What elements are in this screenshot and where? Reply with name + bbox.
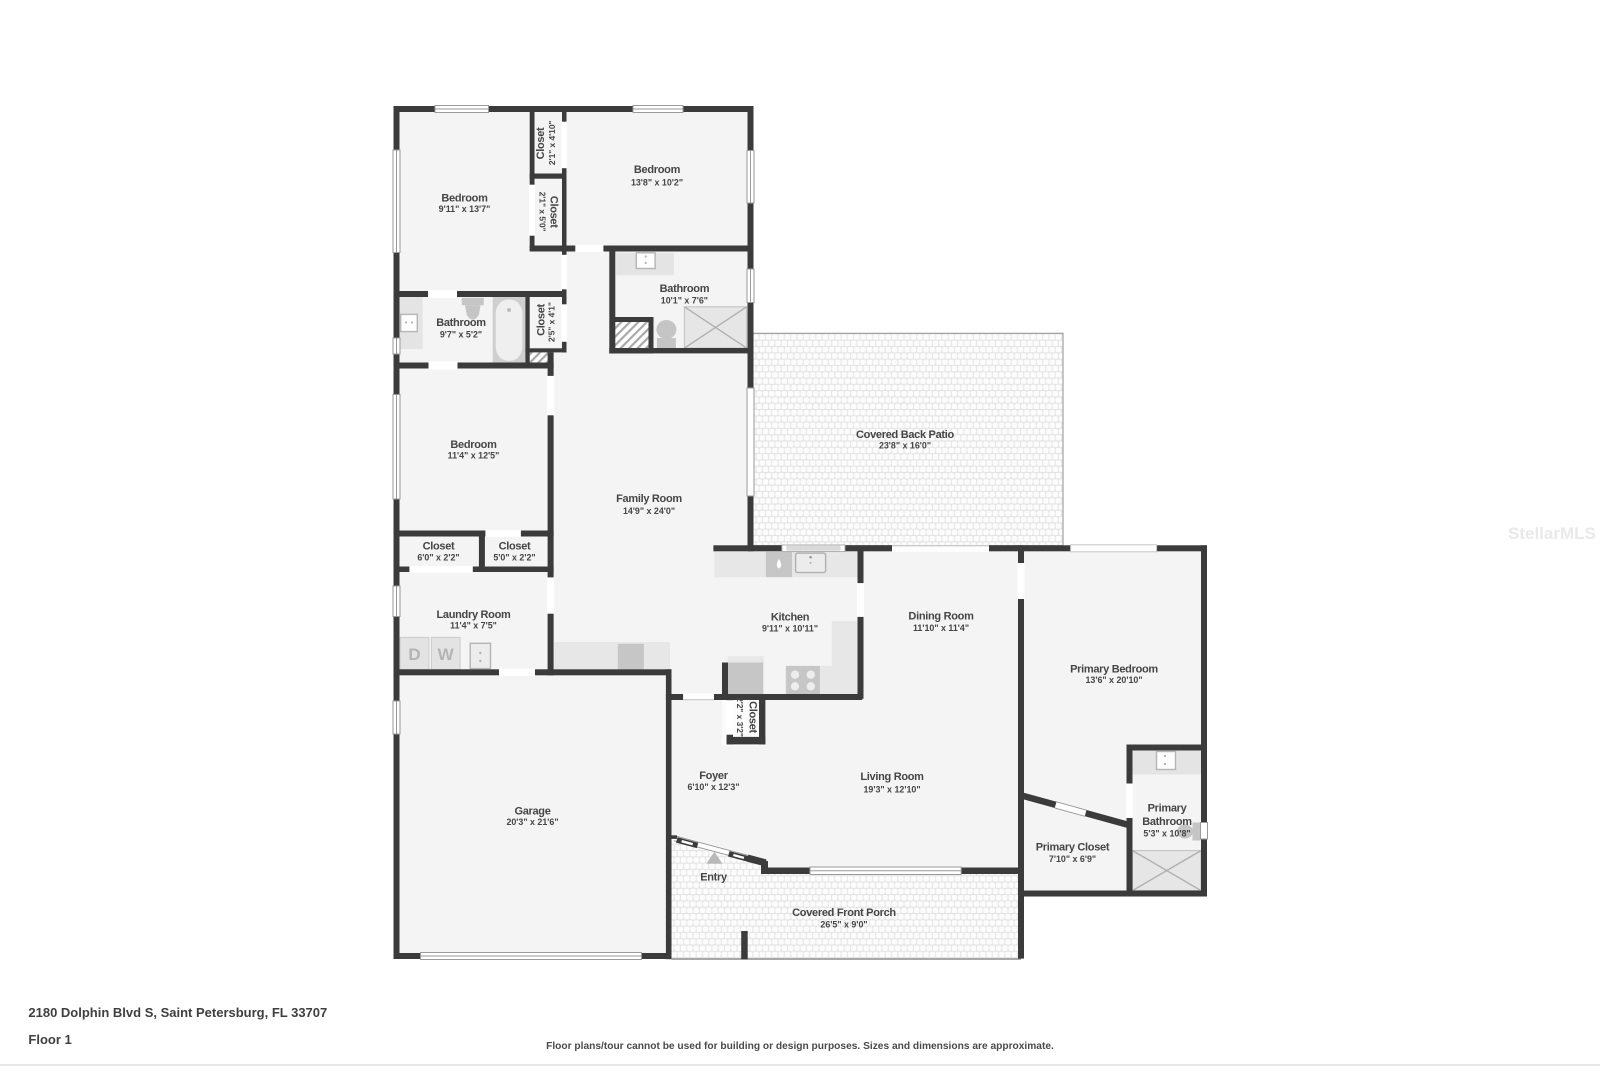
svg-text:Closet: Closet xyxy=(548,196,560,228)
svg-text:Bathroom: Bathroom xyxy=(660,283,710,295)
svg-text:Floor 1: Floor 1 xyxy=(28,1032,71,1047)
svg-text:Closet: Closet xyxy=(423,541,455,553)
svg-text:Covered Front Porch: Covered Front Porch xyxy=(792,907,896,919)
svg-text:19'3" x 12'10": 19'3" x 12'10" xyxy=(863,784,920,794)
svg-text:Entry: Entry xyxy=(700,871,728,883)
svg-text:Closet: Closet xyxy=(499,541,531,553)
svg-text:Primary Bedroom: Primary Bedroom xyxy=(1070,664,1158,676)
svg-text:Bedroom: Bedroom xyxy=(450,439,497,451)
svg-text:Laundry Room: Laundry Room xyxy=(436,609,511,621)
svg-text:Primary Closet: Primary Closet xyxy=(1036,841,1110,853)
svg-text:6'0" x 2'2": 6'0" x 2'2" xyxy=(417,552,459,562)
svg-text:2180 Dolphin Blvd S, Saint Pet: 2180 Dolphin Blvd S, Saint Petersburg, F… xyxy=(28,1005,327,1020)
svg-text:9'11" x 10'11": 9'11" x 10'11" xyxy=(762,624,818,634)
svg-text:23'8" x 16'0": 23'8" x 16'0" xyxy=(879,441,931,451)
svg-text:5'0" x 2'2": 5'0" x 2'2" xyxy=(493,552,535,562)
svg-text:StellarMLS: StellarMLS xyxy=(1508,524,1596,543)
svg-text:D: D xyxy=(408,645,420,664)
svg-text:Primary: Primary xyxy=(1148,802,1188,814)
svg-text:26'5" x 9'0": 26'5" x 9'0" xyxy=(820,920,867,930)
svg-text:Closet: Closet xyxy=(747,701,759,733)
svg-text:Bedroom: Bedroom xyxy=(634,164,681,176)
svg-text:Floor plans/tour cannot be use: Floor plans/tour cannot be used for buil… xyxy=(546,1041,1054,1052)
svg-text:14'9" x 24'0": 14'9" x 24'0" xyxy=(623,506,675,516)
svg-text:Garage: Garage xyxy=(514,806,550,818)
svg-text:Closet: Closet xyxy=(535,127,547,159)
svg-text:2'2" x 3'2": 2'2" x 3'2" xyxy=(735,697,745,737)
svg-text:Dining Room: Dining Room xyxy=(908,610,974,622)
svg-text:Covered Back Patio: Covered Back Patio xyxy=(856,429,954,441)
svg-text:2'1" x 4'10": 2'1" x 4'10" xyxy=(547,121,557,166)
svg-text:6'10" x 12'3": 6'10" x 12'3" xyxy=(687,782,739,792)
svg-text:Living Room: Living Room xyxy=(860,771,924,783)
svg-text:Bedroom: Bedroom xyxy=(441,192,488,204)
svg-text:Family Room: Family Room xyxy=(616,493,682,505)
svg-text:Bathroom: Bathroom xyxy=(436,317,486,329)
svg-text:11'4" x 12'5": 11'4" x 12'5" xyxy=(448,451,500,461)
svg-text:7'10" x 6'9": 7'10" x 6'9" xyxy=(1049,854,1096,864)
svg-text:W: W xyxy=(438,645,455,664)
svg-text:13'6" x 20'10": 13'6" x 20'10" xyxy=(1085,675,1142,685)
svg-text:Foyer: Foyer xyxy=(699,770,728,782)
svg-text:Closet: Closet xyxy=(536,303,548,335)
svg-text:2'1" x 5'0": 2'1" x 5'0" xyxy=(537,192,547,232)
svg-text:Bathroom: Bathroom xyxy=(1142,816,1192,828)
svg-text:11'10" x 11'4": 11'10" x 11'4" xyxy=(913,623,969,633)
svg-text:13'8" x 10'2": 13'8" x 10'2" xyxy=(631,178,683,188)
svg-text:2'5" x 4'1": 2'5" x 4'1" xyxy=(547,302,557,342)
svg-text:10'1" x 7'6": 10'1" x 7'6" xyxy=(661,296,708,306)
svg-text:20'3" x 21'6": 20'3" x 21'6" xyxy=(506,817,558,827)
svg-text:5'3" x 10'8": 5'3" x 10'8" xyxy=(1143,829,1190,839)
svg-text:Kitchen: Kitchen xyxy=(771,612,810,624)
svg-text:11'4" x 7'5": 11'4" x 7'5" xyxy=(450,621,497,631)
svg-text:9'7" x 5'2": 9'7" x 5'2" xyxy=(440,329,482,339)
svg-text:9'11" x 13'7": 9'11" x 13'7" xyxy=(439,204,491,214)
